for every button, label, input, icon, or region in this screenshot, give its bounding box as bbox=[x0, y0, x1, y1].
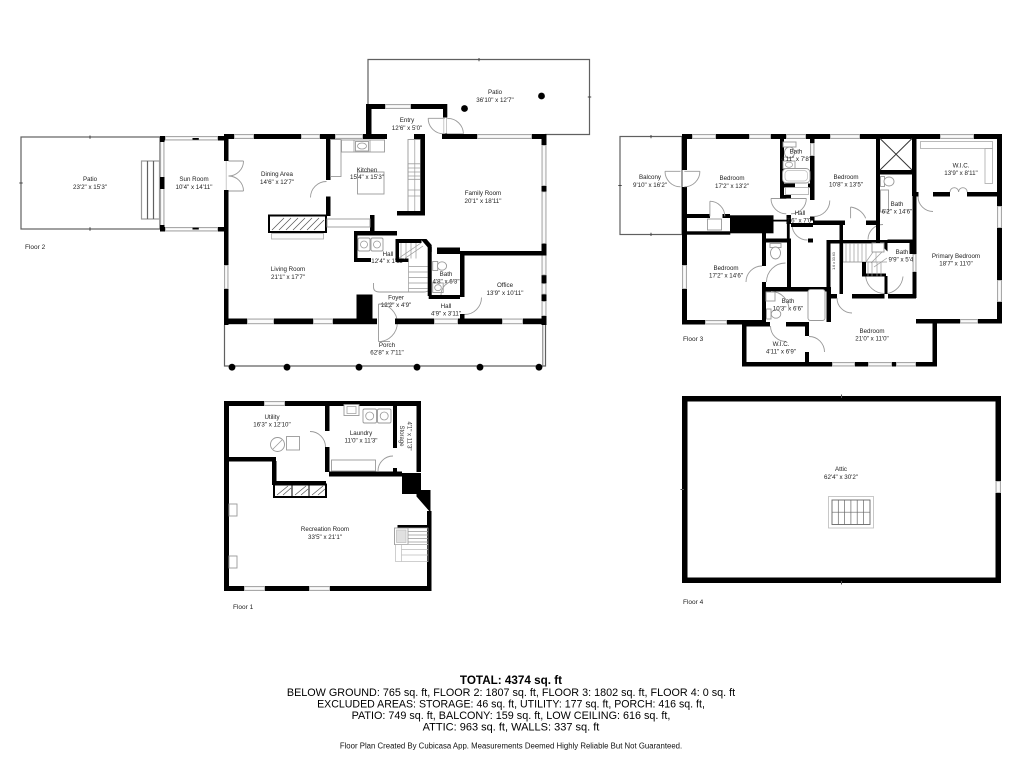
svg-text:10'4" x 14'11": 10'4" x 14'11" bbox=[176, 184, 213, 191]
svg-text:Hall: Hall bbox=[383, 251, 394, 258]
svg-text:4'11" x 6'9": 4'11" x 6'9" bbox=[766, 349, 796, 356]
svg-text:10'8" x 13'5": 10'8" x 13'5" bbox=[829, 182, 863, 189]
svg-text:Hall: Hall bbox=[441, 303, 452, 310]
svg-text:17'2" x 14'6": 17'2" x 14'6" bbox=[709, 273, 743, 280]
svg-text:Kitchen: Kitchen bbox=[357, 167, 378, 174]
svg-text:62'4" x 30'2": 62'4" x 30'2" bbox=[824, 474, 858, 481]
svg-text:13'9" x 10'11": 13'9" x 10'11" bbox=[487, 290, 524, 297]
svg-text:33'5" x 21'1": 33'5" x 21'1" bbox=[308, 534, 342, 541]
svg-text:7'6" x 7'0": 7'6" x 7'0" bbox=[786, 218, 813, 225]
svg-text:Primary Bedroom: Primary Bedroom bbox=[932, 253, 980, 260]
svg-text:6'2" x 14'6": 6'2" x 14'6" bbox=[882, 209, 913, 216]
svg-text:PATIO: 749 sq. ft, BALCONY: 15: PATIO: 749 sq. ft, BALCONY: 159 sq. ft, … bbox=[352, 710, 671, 722]
svg-text:Floor Plan Created By Cubicasa: Floor Plan Created By Cubicasa App. Meas… bbox=[340, 742, 682, 751]
svg-text:Attic: Attic bbox=[835, 466, 847, 473]
svg-text:17'2" x 13'2": 17'2" x 13'2" bbox=[715, 183, 749, 190]
svg-text:W.I.C.: W.I.C. bbox=[773, 341, 790, 348]
svg-text:W.I.C.: W.I.C. bbox=[953, 163, 970, 170]
svg-text:21'1" x 17'7": 21'1" x 17'7" bbox=[271, 274, 305, 281]
svg-text:TOTAL: 4374 sq. ft: TOTAL: 4374 sq. ft bbox=[460, 674, 562, 687]
svg-text:Bath: Bath bbox=[896, 249, 909, 256]
svg-text:Patio: Patio bbox=[83, 176, 98, 183]
svg-text:9'10" x 16'2": 9'10" x 16'2" bbox=[633, 182, 667, 189]
svg-text:Floor 4: Floor 4 bbox=[683, 599, 704, 606]
svg-text:Bath: Bath bbox=[891, 201, 904, 208]
svg-text:10'3" x 6'6": 10'3" x 6'6" bbox=[773, 306, 804, 313]
svg-text:Bedroom: Bedroom bbox=[833, 174, 858, 181]
svg-text:Dining Area: Dining Area bbox=[261, 171, 294, 178]
svg-text:Office: Office bbox=[497, 282, 514, 289]
svg-text:Laundry: Laundry bbox=[350, 430, 373, 437]
svg-text:9'9" x 5'4": 9'9" x 5'4" bbox=[888, 257, 915, 264]
svg-text:21'0" x 11'0": 21'0" x 11'0" bbox=[855, 336, 888, 343]
svg-text:15'4" x 15'3": 15'4" x 15'3" bbox=[350, 174, 384, 181]
svg-text:62'8" x 7'11": 62'8" x 7'11" bbox=[370, 350, 403, 357]
svg-text:Storage: Storage bbox=[398, 425, 404, 447]
svg-text:14'6" x 12'7": 14'6" x 12'7" bbox=[260, 179, 294, 186]
svg-text:4'9" x 3'11": 4'9" x 3'11" bbox=[431, 311, 461, 318]
svg-text:36'10" x 12'7": 36'10" x 12'7" bbox=[476, 97, 513, 104]
svg-text:Floor 2: Floor 2 bbox=[25, 244, 46, 251]
svg-text:EXCLUDED AREAS: STORAGE: 46 sq: EXCLUDED AREAS: STORAGE: 46 sq. ft, UTIL… bbox=[317, 699, 705, 711]
svg-text:Patio: Patio bbox=[488, 89, 503, 96]
svg-text:Bath: Bath bbox=[440, 271, 453, 278]
svg-text:Recreation Room: Recreation Room bbox=[301, 526, 349, 533]
svg-text:ATTIC: 963 sq. ft, WALLS: 337: ATTIC: 963 sq. ft, WALLS: 337 sq. ft bbox=[423, 722, 600, 734]
svg-text:BELOW GROUND: 765 sq. ft, FLOO: BELOW GROUND: 765 sq. ft, FLOOR 2: 1807 … bbox=[287, 687, 735, 699]
svg-text:Utility: Utility bbox=[264, 414, 280, 421]
svg-text:Floor 3: Floor 3 bbox=[683, 336, 704, 343]
svg-text:Bath: Bath bbox=[790, 149, 803, 156]
svg-text:13'9" x 8'11": 13'9" x 8'11" bbox=[944, 170, 977, 177]
svg-text:Sun Room: Sun Room bbox=[179, 176, 208, 183]
svg-text:Floor 1: Floor 1 bbox=[233, 604, 254, 611]
svg-text:1.6 x 33.63: 1.6 x 33.63 bbox=[832, 252, 836, 270]
svg-text:Bedroom: Bedroom bbox=[719, 175, 744, 182]
svg-text:11'0" x 11'3": 11'0" x 11'3" bbox=[344, 438, 377, 445]
svg-text:Porch: Porch bbox=[379, 342, 396, 349]
svg-text:4'11" x 7'8": 4'11" x 7'8" bbox=[781, 156, 811, 163]
svg-text:Family Room: Family Room bbox=[465, 190, 501, 197]
svg-text:Entry: Entry bbox=[400, 117, 415, 124]
svg-text:16'3" x 12'10": 16'3" x 12'10" bbox=[253, 422, 290, 429]
svg-text:Bedroom: Bedroom bbox=[859, 328, 884, 335]
svg-text:18'7" x 11'0": 18'7" x 11'0" bbox=[939, 261, 972, 268]
svg-text:Balcony: Balcony bbox=[639, 174, 662, 181]
svg-text:12'6" x 5'0": 12'6" x 5'0" bbox=[392, 125, 423, 132]
svg-text:Hall: Hall bbox=[795, 210, 806, 217]
svg-text:20'1" x 18'11": 20'1" x 18'11" bbox=[465, 198, 502, 205]
svg-text:Foyer: Foyer bbox=[388, 295, 404, 302]
svg-text:Bedroom: Bedroom bbox=[713, 265, 738, 272]
svg-text:23'2" x 15'3": 23'2" x 15'3" bbox=[73, 184, 107, 191]
svg-text:4'1" x 11'3": 4'1" x 11'3" bbox=[406, 421, 412, 450]
svg-text:Living Room: Living Room bbox=[271, 266, 305, 273]
